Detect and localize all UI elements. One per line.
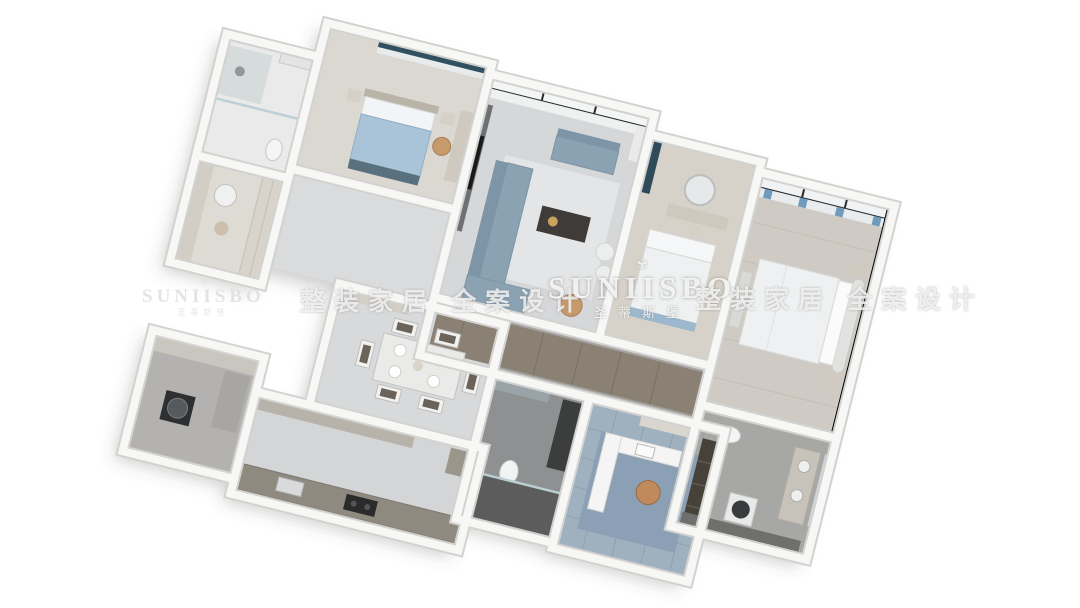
- floorplan-svg: [0, 0, 1080, 608]
- floorplan-render: ✾ SUNIISBO 圣蒂斯堡 整装家居 全案设计 ✾ SUNIISBO 圣蒂斯…: [0, 0, 1080, 608]
